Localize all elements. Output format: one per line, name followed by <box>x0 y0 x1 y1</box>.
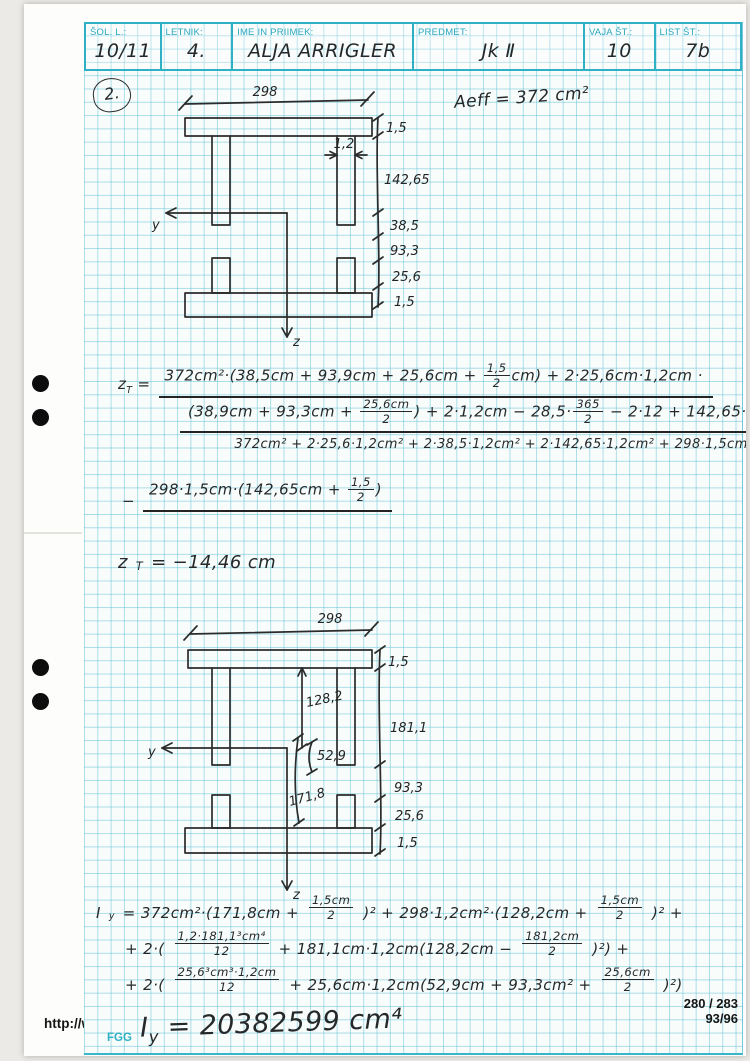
dim-label-bottom-flange: 1,5 <box>397 836 418 851</box>
dim-label-top-flange: 1,5 <box>386 121 407 136</box>
header-cell-name: IME IN PRIIMEK: ALJA ARRIGLER <box>233 24 414 69</box>
aeff-note: Aeff = 372 cm² <box>453 83 589 112</box>
dim-label-25-6: 25,6 <box>395 809 424 824</box>
punch-hole <box>32 375 49 392</box>
field-value-handwritten: Jk Ⅱ <box>414 40 583 62</box>
punch-hole <box>32 659 49 676</box>
dim-label-width: 298 <box>253 85 278 100</box>
field-value-handwritten: 10 <box>585 40 654 62</box>
scanned-worksheet: http://www.student-info.net/knjiznica ŠO… <box>0 0 750 1061</box>
axis-label-z: z <box>292 335 301 350</box>
dim-label-width: 298 <box>318 612 343 627</box>
field-label: ŠOL. L.: <box>90 27 126 38</box>
dim-label-93-3: 93,3 <box>394 781 423 796</box>
paper-page: http://www.student-info.net/knjiznica ŠO… <box>24 4 746 1056</box>
field-value-handwritten: 10/11 <box>86 40 160 62</box>
header-cell-vaja-st: VAJA ŠT.: 10 <box>585 24 656 69</box>
zt-fraction: (38,9cm + 93,3cm + 25,6cm2) + 2·1,2cm − … <box>180 398 746 452</box>
iy-equation-line2: + 2·(1,2·181,1³cm⁴12 + 181,1cm·1,2cm(128… <box>125 930 629 958</box>
iy-equation-line1: Iy = 372cm²·(171,8cm + 1,5cm2)² + 298·1,… <box>96 894 683 922</box>
punch-hole <box>32 693 49 710</box>
field-value-handwritten: ALJA ARRIGLER <box>233 40 412 62</box>
dim-label-25-6: 25,6 <box>392 270 421 285</box>
zt-equation-line3: − 298·1,5cm·(142,65cm + 1,52) <box>122 474 392 512</box>
field-label: LIST ŠT.: <box>660 27 701 38</box>
dim-label-181-1: 181,1 <box>390 721 427 736</box>
zt-numerator-1: 372cm²·(38,5cm + 93,9cm + 25,6cm + 1,52c… <box>159 360 713 398</box>
zt-lhs: zT = <box>118 375 151 396</box>
graph-paper: ŠOL. L.: 10/11 LETNIK: 4. IME IN PRIIMEK… <box>84 22 743 1055</box>
header-cell-list-st: LIST ŠT.: 7b <box>656 24 740 69</box>
punch-hole <box>32 409 49 426</box>
task-number: 2. <box>91 76 133 115</box>
zt-numerator-3: 298·1,5cm·(142,65cm + 1,52) <box>143 474 392 512</box>
beam-outline <box>162 622 385 890</box>
axis-label-y: y <box>147 745 156 760</box>
field-label: PREDMET: <box>418 27 468 38</box>
zt-equation-line2: (38,9cm + 93,3cm + 25,6cm2) + 2·1,2cm − … <box>180 398 746 452</box>
dim-label-128-2: 128,2 <box>305 689 345 711</box>
org-label-fgg: FGG <box>107 1032 132 1044</box>
dim-label-93-3: 93,3 <box>390 244 419 259</box>
header-cell-sol-l: ŠOL. L.: 10/11 <box>86 24 162 69</box>
header-table: ŠOL. L.: 10/11 LETNIK: 4. IME IN PRIIMEK… <box>84 22 742 71</box>
dim-label-web-thickness: 1,2 <box>334 137 355 152</box>
field-label: LETNIK: <box>166 27 203 38</box>
zt-numerator-2: (38,9cm + 93,3cm + 25,6cm2) + 2·1,2cm − … <box>180 398 746 433</box>
header-cell-letnik: LETNIK: 4. <box>162 24 234 69</box>
zt-denominator: 372cm² + 2·25,6·1,2cm² + 2·38,5·1,2cm² +… <box>234 433 746 452</box>
zt-result: zT = −14,46 cm <box>118 552 276 573</box>
axis-label-y: y <box>151 218 160 233</box>
field-label: IME IN PRIIMEK: <box>237 27 313 38</box>
cross-section-diagram-1: 298 1,2 1,5 142,65 38,5 93,3 25,6 1,5 y … <box>140 85 470 351</box>
iy-result: Iy = 20382599 cm⁴ <box>139 1003 403 1047</box>
dim-label-52-9: 52,9 <box>317 749 346 764</box>
header-cell-predmet: PREDMET: Jk Ⅱ <box>414 24 585 69</box>
zt-line3-minus: − <box>122 492 135 510</box>
page-number: 280 / 283 <box>684 996 738 1011</box>
beam-outline <box>166 92 383 337</box>
dim-label-38-5: 38,5 <box>390 219 419 234</box>
scan-fold-line <box>24 532 82 534</box>
dim-label-bottom-flange: 1,5 <box>394 295 415 310</box>
cross-section-diagram-2: 298 1,5 128,2 181,1 52,9 171,8 93,3 25,6… <box>140 610 470 910</box>
dim-label-top-flange: 1,5 <box>388 655 409 670</box>
field-label: VAJA ŠT.: <box>589 27 632 38</box>
dim-label-web-height: 142,65 <box>384 173 430 188</box>
field-value-handwritten: 7b <box>656 40 740 62</box>
field-value-handwritten: 4. <box>162 40 232 62</box>
page-number-secondary: 93/96 <box>705 1011 738 1026</box>
zt-equation-line1: zT = 372cm²·(38,5cm + 93,9cm + 25,6cm + … <box>118 360 713 398</box>
iy-equation-line3: + 2·(25,6³cm³·1,2cm12 + 25,6cm·1,2cm(52,… <box>125 966 683 994</box>
dim-label-171-8: 171,8 <box>287 786 327 810</box>
